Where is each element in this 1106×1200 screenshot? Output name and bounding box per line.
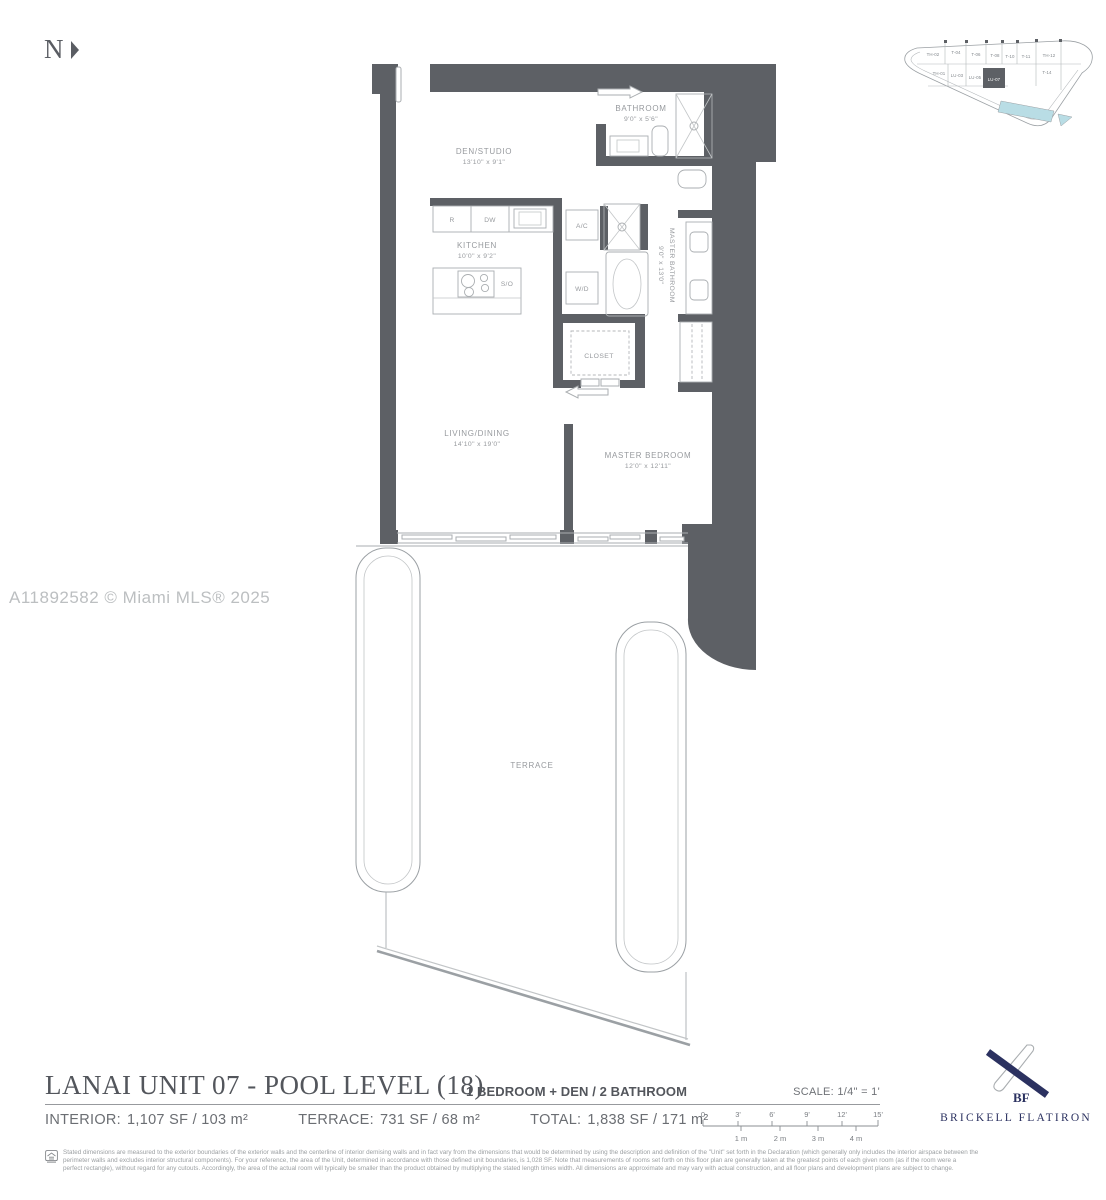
- refrigerator-label: R: [449, 217, 454, 224]
- bathroom-toilet: [652, 126, 668, 156]
- closet-label: CLOSET: [584, 353, 614, 360]
- scale-tick-ft: 12': [837, 1110, 847, 1119]
- interior-value: 1,107 SF / 103 m²: [127, 1112, 248, 1128]
- scale-tick-ft: 0: [701, 1110, 705, 1119]
- scale-bar-line: [703, 1120, 878, 1131]
- disclaimer: Stated dimensions are measured to the ex…: [45, 1149, 978, 1173]
- disclaimer-line: perimeter walls and excludes interior st…: [63, 1157, 978, 1165]
- terrace: [356, 546, 690, 1045]
- washer-dryer-label: W/D: [575, 286, 589, 293]
- scale-tick-m: 3 m: [812, 1134, 825, 1143]
- brand-logo-icon: BF: [975, 1042, 1065, 1108]
- brand-monogram: BF: [1013, 1090, 1030, 1105]
- disclaimer-line: perfect rectangle), without regard for a…: [63, 1165, 978, 1173]
- brand-name: BRICKELL FLATIRON: [936, 1112, 1096, 1124]
- terrace-label: TERRACE:: [298, 1112, 374, 1128]
- total-label: TOTAL:: [530, 1112, 581, 1128]
- door-leaf: [396, 67, 401, 102]
- page-title: LANAI UNIT 07 - POOL LEVEL (18): [45, 1070, 484, 1101]
- terrace-label: TERRACE: [510, 761, 553, 770]
- walls: [372, 64, 776, 670]
- terrace-planter-left: [356, 548, 420, 892]
- master-bathroom-label: MASTER BATHROOM: [668, 228, 675, 303]
- master-bath-toilet: [678, 170, 706, 188]
- mls-watermark: A11892582 © Miami MLS® 2025: [9, 588, 270, 608]
- terrace-planter-right: [616, 622, 686, 972]
- sliding-glass-doors: [397, 533, 688, 543]
- terrace-area: TERRACE:731 SF / 68 m²: [298, 1112, 480, 1128]
- den-studio-label: DEN/STUDIO: [456, 147, 512, 156]
- scale-tick-m: 1 m: [735, 1134, 748, 1143]
- total-area: TOTAL:1,838 SF / 171 m²: [530, 1112, 708, 1128]
- interior-label: INTERIOR:: [45, 1112, 121, 1128]
- bathroom-dims: 9'0" x 5'6": [624, 116, 658, 123]
- ac-label: A/C: [576, 223, 588, 230]
- living-dining-label: LIVING/DINING: [444, 429, 510, 438]
- scale-tick-ft: 9': [804, 1110, 810, 1119]
- dishwasher-label: DW: [484, 217, 496, 224]
- interior-area: INTERIOR:1,107 SF / 103 m²: [45, 1112, 248, 1128]
- master-bathroom-fixtures: [604, 170, 712, 316]
- scale-tick-m: 4 m: [850, 1134, 863, 1143]
- master-bedroom-dims: 12'0" x 12'11": [625, 463, 671, 470]
- kitchen-dims: 10'0" x 9'2": [458, 253, 496, 260]
- closet-door: [581, 379, 599, 386]
- scale-label: SCALE: 1/4" = 1': [700, 1086, 880, 1098]
- floor-plan: BATHROOM 9'0" x 5'6" DEN/STUDIO 13'10" x…: [0, 0, 1106, 1065]
- scale-tick-ft: 3': [735, 1110, 741, 1119]
- bathroom-sink: [610, 136, 648, 156]
- divider-rule: [45, 1104, 880, 1105]
- area-stats: INTERIOR:1,107 SF / 103 m² TERRACE:731 S…: [45, 1112, 755, 1128]
- kitchen-cooktop: [458, 271, 494, 297]
- scale-tick-ft: 6': [769, 1110, 775, 1119]
- master-bedroom-label: MASTER BEDROOM: [605, 451, 692, 460]
- closet-door: [601, 379, 619, 386]
- scale-tick-m: 2 m: [774, 1134, 787, 1143]
- kitchen-island: [433, 268, 521, 314]
- bedroom-wardrobe: [680, 322, 712, 382]
- scale-bar: 0 3' 6' 9' 12' 15' 1 m 2 m 3 m 4 m: [695, 1106, 890, 1146]
- master-bathroom-dims: 9'0" x 13'0": [657, 246, 664, 284]
- kitchen-fixtures: [433, 206, 598, 314]
- den-studio-dims: 13'10" x 9'1": [463, 159, 506, 166]
- stove-oven-label: S/O: [501, 281, 513, 288]
- disclaimer-line: Stated dimensions are measured to the ex…: [63, 1149, 978, 1157]
- master-bath-tub: [606, 252, 648, 316]
- total-value: 1,838 SF / 171 m²: [587, 1112, 708, 1128]
- living-dining-dims: 14'10" x 19'0": [454, 441, 501, 448]
- bathroom-label: BATHROOM: [615, 104, 666, 113]
- floor-plan-page: N: [0, 0, 1106, 1200]
- terrace-value: 731 SF / 68 m²: [380, 1112, 480, 1128]
- kitchen-label: KITCHEN: [457, 241, 497, 250]
- scale-tick-ft: 15': [873, 1110, 883, 1119]
- unit-configuration: 1 BEDROOM + DEN / 2 BATHROOM: [466, 1084, 687, 1099]
